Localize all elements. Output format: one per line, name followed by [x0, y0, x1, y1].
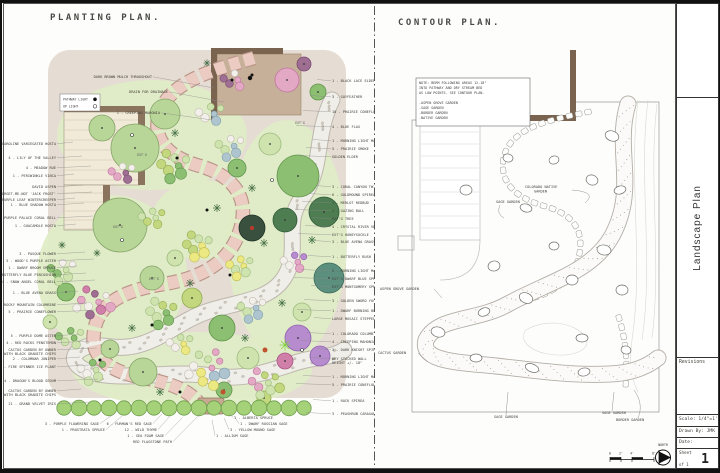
- plant-circle: [99, 361, 105, 367]
- plan-label: 4 - RED ROCKS PENSTEMON: [6, 341, 56, 345]
- plant-circle: [159, 301, 167, 309]
- stipple-dot: [454, 324, 455, 325]
- plant-circle: [67, 327, 74, 334]
- flagstone-outline: [530, 199, 538, 206]
- deck-post-wall: [570, 50, 576, 120]
- hedge-plant: [101, 400, 117, 416]
- stipple-dot: [620, 215, 621, 216]
- stipple-dot: [429, 330, 430, 331]
- hedge-plant: [117, 401, 131, 415]
- stipple-dot: [428, 341, 429, 342]
- plan-label: 6 - BUTTERFLY BLUE PINCUSHION: [2, 273, 56, 277]
- plant-circle: [149, 208, 156, 215]
- plant-center-dot: [297, 337, 299, 339]
- stipple-dot: [623, 369, 624, 370]
- boulder: [576, 334, 588, 342]
- stipple-dot: [435, 357, 436, 358]
- plant-circle: [166, 339, 173, 346]
- pathway-light: [99, 359, 102, 362]
- flagstone-outline: [576, 249, 583, 256]
- stipple-dot: [466, 318, 467, 319]
- stipple-dot: [627, 194, 628, 195]
- hedge-plant: [191, 400, 207, 416]
- stream-pebble: [291, 245, 293, 248]
- plant-circle: [204, 356, 211, 363]
- plant-circle: [295, 264, 304, 273]
- plan-label: WITH BLACK GRANITE CHIPS: [4, 352, 56, 356]
- flagstone-outline: [540, 202, 548, 209]
- stipple-dot: [491, 305, 492, 306]
- stipple-dot: [556, 287, 557, 288]
- plan-label: 3 - PURPLE FLOWERING SAGE: [45, 422, 99, 426]
- flagstone-outline: [522, 195, 530, 203]
- plant-circle: [207, 103, 214, 110]
- boulder: [585, 173, 600, 187]
- plan-label: 3 - GAYFEATHER: [332, 95, 363, 99]
- flagstone-outline: [557, 209, 565, 217]
- flagstone-outline: [514, 190, 523, 198]
- revisions-box: Revisions: [677, 358, 718, 415]
- plant-center-dot: [174, 257, 176, 259]
- plant-circle: [77, 296, 85, 304]
- hedge-plant: [87, 401, 101, 415]
- plant-circle: [235, 82, 244, 91]
- stipple-dot: [449, 357, 450, 358]
- plan-label: 4 - SNOW ANGEL CORAL BELL: [2, 280, 56, 284]
- stipple-dot: [546, 377, 547, 378]
- stipple-dot: [624, 198, 625, 199]
- plan-label: 6 - CAROLINE VARIEGATED HOSTA: [2, 142, 57, 146]
- stipple-dot: [458, 326, 459, 327]
- stipple-dot: [619, 116, 620, 117]
- note-line: INTO PATHWAY AND DRY STREAM BED: [419, 86, 482, 90]
- stipple-dot: [599, 380, 600, 381]
- stipple-dot: [617, 152, 618, 153]
- stipple-dot: [620, 131, 621, 132]
- stipple-dot: [452, 361, 453, 362]
- up-light: [301, 349, 304, 352]
- flagstone-outline: [578, 240, 583, 247]
- plant-circle: [226, 260, 234, 268]
- plant-circle: [175, 168, 186, 179]
- plan-label: 3 - DARK KNIGHT SPIREA: [332, 348, 374, 352]
- plan-label: 1 - COLORADO COLUMBINE: [332, 332, 374, 336]
- plant-center-dot: [134, 147, 136, 149]
- plan-label: 3 - BLUE AVENA GRASS: [332, 240, 374, 244]
- plan-label: GOLDEN ELDER: [332, 155, 359, 159]
- flagstone-outline: [571, 221, 579, 229]
- stipple-dot: [616, 217, 617, 218]
- note-line: NOTE: BERM FOLLOWING AREAS 12-18": [419, 81, 486, 85]
- plant-circle: [247, 258, 253, 264]
- plan-label: 5 - MORNING LIGHT MAIDEN GRASS: [332, 269, 374, 273]
- plant-center-dot: [191, 297, 193, 299]
- plant-circle: [280, 257, 287, 264]
- stipple-dot: [542, 374, 543, 375]
- plant-circle: [215, 140, 223, 148]
- stipple-dot: [622, 113, 623, 114]
- plant-circle: [237, 302, 245, 310]
- plan-label: DAVID ASPEN: [32, 185, 56, 189]
- boulder: [566, 275, 578, 285]
- leader-line: [499, 205, 504, 218]
- plan-label: 1 - DWARF BURNING BUSH: [332, 309, 374, 313]
- plan-label: 5 - PRAIRIE CONEFLOWER: [8, 310, 56, 314]
- plant-circle: [249, 297, 256, 304]
- plant-circle: [84, 302, 92, 310]
- stipple-dot: [552, 286, 553, 287]
- stipple-dot: [559, 276, 560, 277]
- existing-note: EXT'G: [137, 153, 147, 157]
- plan-label: 4 - DRAGON'S BLOOD SEDUM: [4, 379, 57, 383]
- plant-circle: [63, 272, 72, 281]
- plant-circle: [241, 268, 250, 277]
- plan-label: 6 - ROCKY MOUNTAIN COLUMBINE: [2, 303, 56, 307]
- stipple-dot: [492, 317, 493, 318]
- plant-circle: [96, 299, 102, 305]
- plant-circle: [198, 377, 208, 387]
- stipple-dot: [619, 367, 620, 368]
- plant-circle: [96, 305, 105, 314]
- stipple-dot: [539, 371, 540, 372]
- plant-center-dot: [284, 360, 286, 362]
- hedge-plant: [297, 401, 311, 415]
- plant-center-dot: [49, 321, 51, 323]
- plant-circle: [190, 252, 200, 262]
- plan-label: 4 - LILY OF THE VALLEY: [8, 156, 56, 160]
- plant-center-dot: [319, 355, 321, 357]
- stipple-dot: [648, 367, 649, 368]
- stipple-dot: [441, 319, 442, 320]
- plan-label: 1 - BLUE SHADOW HOSTA: [11, 203, 57, 207]
- stipple-dot: [587, 269, 588, 270]
- stipple-dot: [639, 365, 640, 366]
- plant-circle: [77, 329, 83, 335]
- plan-label: 1 - MERLOT REDBUD: [332, 201, 369, 205]
- plant-circle: [237, 256, 244, 263]
- plant-circle: [256, 391, 265, 400]
- stipple-dot: [626, 142, 627, 143]
- plan-label: 6 - FURMAN'S RED SAGE: [107, 422, 152, 426]
- flagstone-outline: [500, 167, 506, 174]
- stipple-dot: [498, 360, 499, 361]
- stipple-dot: [425, 344, 426, 345]
- note-line: AS LOW POINTS. SEE CONTOUR PLAN.: [419, 91, 484, 95]
- plant-circle: [212, 349, 219, 356]
- stipple-dot: [652, 368, 653, 369]
- stipple-dot: [432, 340, 433, 341]
- stipple-dot: [476, 370, 477, 371]
- plan-label: ASPEN GROVE GARDEN: [380, 287, 419, 291]
- stipple-dot: [567, 367, 568, 368]
- plant-circle: [151, 297, 159, 305]
- existing-note: EXT'G: [295, 121, 305, 125]
- stipple-dot: [581, 380, 582, 381]
- plant-circle: [182, 240, 191, 249]
- plan-label: 5 - PRAIRIE CONEFLOWER: [332, 383, 374, 387]
- stipple-dot: [547, 284, 548, 285]
- plant-circle: [291, 252, 298, 259]
- hedge-plant: [177, 401, 191, 415]
- stipple-dot: [511, 373, 512, 374]
- boulder: [616, 285, 628, 295]
- stipple-dot: [610, 233, 611, 234]
- plant-circle: [170, 303, 177, 310]
- plant-circle: [182, 156, 189, 163]
- plant-circle: [184, 370, 193, 379]
- project-title: Landscape Plan: [692, 185, 703, 271]
- title-block-project-area: Landscape Plan: [677, 98, 718, 358]
- leader-line: [572, 190, 589, 203]
- stipple-dot: [623, 145, 624, 146]
- stipple-dot: [508, 370, 509, 371]
- stipple-dot: [626, 159, 627, 160]
- stipple-dot: [618, 229, 619, 230]
- plan-label: 3 - CORAL CANYON TWINSPUR: [332, 185, 374, 189]
- stipple-dot: [614, 231, 615, 232]
- stipple-dot: [504, 309, 505, 310]
- pathway-light: [151, 324, 154, 327]
- hedge-plant: [267, 401, 281, 415]
- date-row: Date:: [677, 438, 718, 449]
- up-light: [271, 179, 274, 182]
- stipple-dot: [624, 212, 625, 213]
- flagstone-outline: [548, 205, 556, 212]
- stipple-dot: [606, 234, 607, 235]
- stipple-dot: [511, 298, 512, 299]
- stipple-dot: [475, 309, 476, 310]
- drawing-sheet: PLANTING PLAN. PATHWAY LIGHTUP LIGHTEXT'…: [0, 0, 720, 473]
- plan-label: 1 - GUACAMOLE HOSTA: [15, 224, 57, 228]
- plant-center-dot: [247, 357, 249, 359]
- flagstone-outline: [502, 175, 510, 183]
- plant-center-dot: [303, 63, 305, 65]
- flagstone-outline: [576, 230, 583, 238]
- boulder: [470, 354, 482, 362]
- stipple-dot: [441, 364, 442, 365]
- plan-label: 1 - BUTTERFLY BUSH: [332, 255, 371, 259]
- flagstone-outline: [506, 139, 514, 148]
- stipple-dot: [626, 372, 627, 373]
- plant-circle: [266, 386, 275, 395]
- plan-label: 10 - PRAIRIE CONEFLOWER: [332, 110, 374, 114]
- plant-circle: [217, 105, 223, 111]
- plan-label: 1 - ALBERTA SPRUCE: [234, 416, 273, 420]
- plant-circle: [195, 351, 203, 359]
- stipple-dot: [578, 268, 579, 269]
- stipple-dot: [563, 379, 564, 380]
- plant-circle: [153, 320, 163, 330]
- plan-label: 1 - DWARF RUSSIAN SAGE: [240, 422, 288, 426]
- plan-label: 5 - PRAIRIE SMOKE: [332, 147, 369, 151]
- stipple-dot: [602, 368, 603, 369]
- stipple-dot: [424, 331, 425, 332]
- plant-circle: [189, 362, 197, 370]
- plant-center-dot: [284, 219, 286, 221]
- plant-circle: [254, 383, 262, 391]
- note-line: -SAGE GARDEN: [419, 106, 444, 110]
- flagstone-outline: [520, 127, 528, 135]
- plant-circle: [91, 290, 98, 297]
- stipple-dot: [433, 348, 434, 349]
- plan-label: 4 - BLUE FLAX: [332, 125, 361, 129]
- plant-center-dot: [101, 127, 103, 129]
- stipple-dot: [423, 348, 424, 349]
- title-block: Landscape Plan Revisions Scale: 1/4"=1' …: [676, 3, 719, 469]
- plant-circle: [265, 380, 271, 386]
- stipple-dot: [618, 170, 619, 171]
- stipple-dot: [554, 275, 555, 276]
- stipple-dot: [540, 294, 541, 295]
- plan-label: GARDEN: [534, 190, 547, 194]
- plan-label: 1 - SEA FOAM SAGE: [127, 434, 164, 438]
- pathway-light: [179, 391, 182, 394]
- legend-label: PATHWAY LIGHT: [63, 98, 88, 102]
- plant-circle: [244, 315, 253, 324]
- stipple-dot: [527, 291, 528, 292]
- stipple-dot: [500, 307, 501, 308]
- plan-label: COLORADO NATIVE: [525, 185, 557, 189]
- stipple-dot: [623, 128, 624, 129]
- stipple-dot: [633, 105, 634, 106]
- plan-label: 3 - PASQUE FLOWER: [19, 252, 57, 256]
- pathway-light: [176, 157, 179, 160]
- stipple-dot: [574, 268, 575, 269]
- stipple-dot: [614, 243, 615, 244]
- stipple-dot: [629, 138, 630, 139]
- stipple-dot: [624, 180, 625, 181]
- stipple-dot: [574, 373, 575, 374]
- plan-label: 5 - PURPLE DOME ASTER: [11, 334, 57, 338]
- sheet-border-bottom: [0, 469, 720, 473]
- stipple-dot: [475, 322, 476, 323]
- stipple-dot: [621, 166, 622, 167]
- plant-circle: [119, 163, 126, 170]
- gazing-ball-dot: [250, 226, 254, 230]
- pathway-light: [206, 209, 209, 212]
- plant-circle: [71, 335, 77, 341]
- scale-bar-label: 8': [652, 452, 656, 456]
- flagstone-outline: [513, 132, 522, 140]
- stipple-dot: [560, 375, 561, 376]
- flagstone-outline: [620, 333, 626, 340]
- leader-line: [313, 400, 331, 401]
- plant-center-dot: [323, 211, 325, 213]
- stipple-dot: [617, 379, 618, 380]
- plan-label: 1 - PURPLE LEAF WINTERCREEPER: [2, 198, 57, 202]
- plan-label: 1 - GAZING BALL: [332, 209, 364, 213]
- stipple-dot: [635, 376, 636, 377]
- plan-label: 1 - PERIWINKLE VINCA: [13, 174, 57, 178]
- plan-label: SAGE GARDEN: [496, 200, 520, 204]
- accent-plant: [263, 348, 268, 353]
- stipple-dot: [516, 362, 517, 363]
- accent-plant: [221, 390, 226, 395]
- plant-circle: [162, 149, 171, 158]
- stipple-dot: [522, 290, 523, 291]
- plant-circle: [187, 336, 193, 342]
- stipple-dot: [450, 322, 451, 323]
- flagstone-outline: [566, 113, 574, 120]
- plan-label: 2 - COLUMNAR JUNIPER: [13, 357, 57, 361]
- stipple-dot: [484, 362, 485, 363]
- plan-label: 1 - CREEPING MAHONIA: [117, 111, 161, 115]
- plant-circle: [195, 235, 203, 243]
- plan-label: EXT'G TREE: [332, 217, 354, 221]
- stipple-dot: [621, 184, 622, 185]
- stipple-dot: [624, 163, 625, 164]
- stipple-dot: [445, 320, 446, 321]
- stream-pebble: [292, 248, 295, 251]
- scale-row: Scale: 1/4"=1': [677, 415, 718, 427]
- leader-line: [212, 420, 215, 436]
- plan-label: 5 - FIRE SPINNER ICE PLANT: [2, 365, 57, 369]
- plant-circle: [275, 383, 285, 393]
- plant-circle: [222, 153, 231, 162]
- up-light: [131, 134, 134, 137]
- flagstone-outline: [623, 380, 629, 387]
- stipple-dot: [609, 245, 610, 246]
- hedge-plant: [147, 401, 161, 415]
- stream-pebble: [171, 369, 174, 371]
- plant-circle: [197, 368, 206, 377]
- hedge-plant: [207, 401, 221, 415]
- deck-tree-dot: [248, 76, 252, 80]
- stipple-dot: [595, 377, 596, 378]
- plant-center-dot: [221, 327, 223, 329]
- flagstone-outline: [618, 323, 625, 331]
- contour-plan-drawing: NOTE: BERM FOLLOWING AREAS 12-18"INTO PA…: [376, 40, 674, 468]
- scale-bar-segment: [610, 457, 621, 459]
- existing-note: EXT'G: [149, 277, 159, 281]
- plant-center-dot: [286, 79, 288, 81]
- stipple-dot: [626, 124, 627, 125]
- plant-circle: [84, 377, 93, 386]
- stipple-dot: [470, 363, 471, 364]
- planting-plan-title: PLANTING PLAN.: [50, 13, 161, 23]
- plant-circle: [248, 377, 256, 385]
- plant-circle: [232, 272, 241, 281]
- stipple-dot: [617, 203, 618, 204]
- stipple-dot: [592, 258, 593, 259]
- plant-center-dot: [269, 143, 271, 145]
- scale-bar-label: 4': [630, 452, 634, 456]
- stipple-dot: [643, 366, 644, 367]
- plant-circle: [253, 368, 260, 375]
- hedge-plant: [281, 400, 297, 416]
- plant-circle: [231, 70, 238, 77]
- plan-label: BORDER GARDEN: [616, 418, 644, 422]
- plant-center-dot: [317, 91, 319, 93]
- plan-label: SAGE GARDEN: [494, 415, 518, 419]
- stipple-dot: [501, 363, 502, 364]
- boulder: [549, 242, 559, 250]
- stipple-dot: [458, 368, 459, 369]
- stipple-dot: [635, 363, 636, 364]
- plan-label: 5 - FALSE FORGET-ME-NOT 'JACK FROST': [2, 192, 56, 196]
- plan-label: EXT'G MONTGOMERY SPRUCE: [332, 285, 374, 289]
- pathway-light: [251, 74, 254, 77]
- plan-label: 5 - WOOD'S PURPLE ASTER: [6, 259, 57, 263]
- plant-circle: [138, 213, 145, 220]
- boulder: [620, 345, 631, 355]
- plan-label: 1 - MORNING LIGHT MAIDEN GRASS: [332, 139, 374, 143]
- plant-circle: [153, 220, 162, 229]
- plant-circle: [219, 368, 230, 379]
- plant-circle: [231, 148, 240, 157]
- hedge-plant: [237, 401, 251, 415]
- plant-center-dot: [142, 371, 144, 373]
